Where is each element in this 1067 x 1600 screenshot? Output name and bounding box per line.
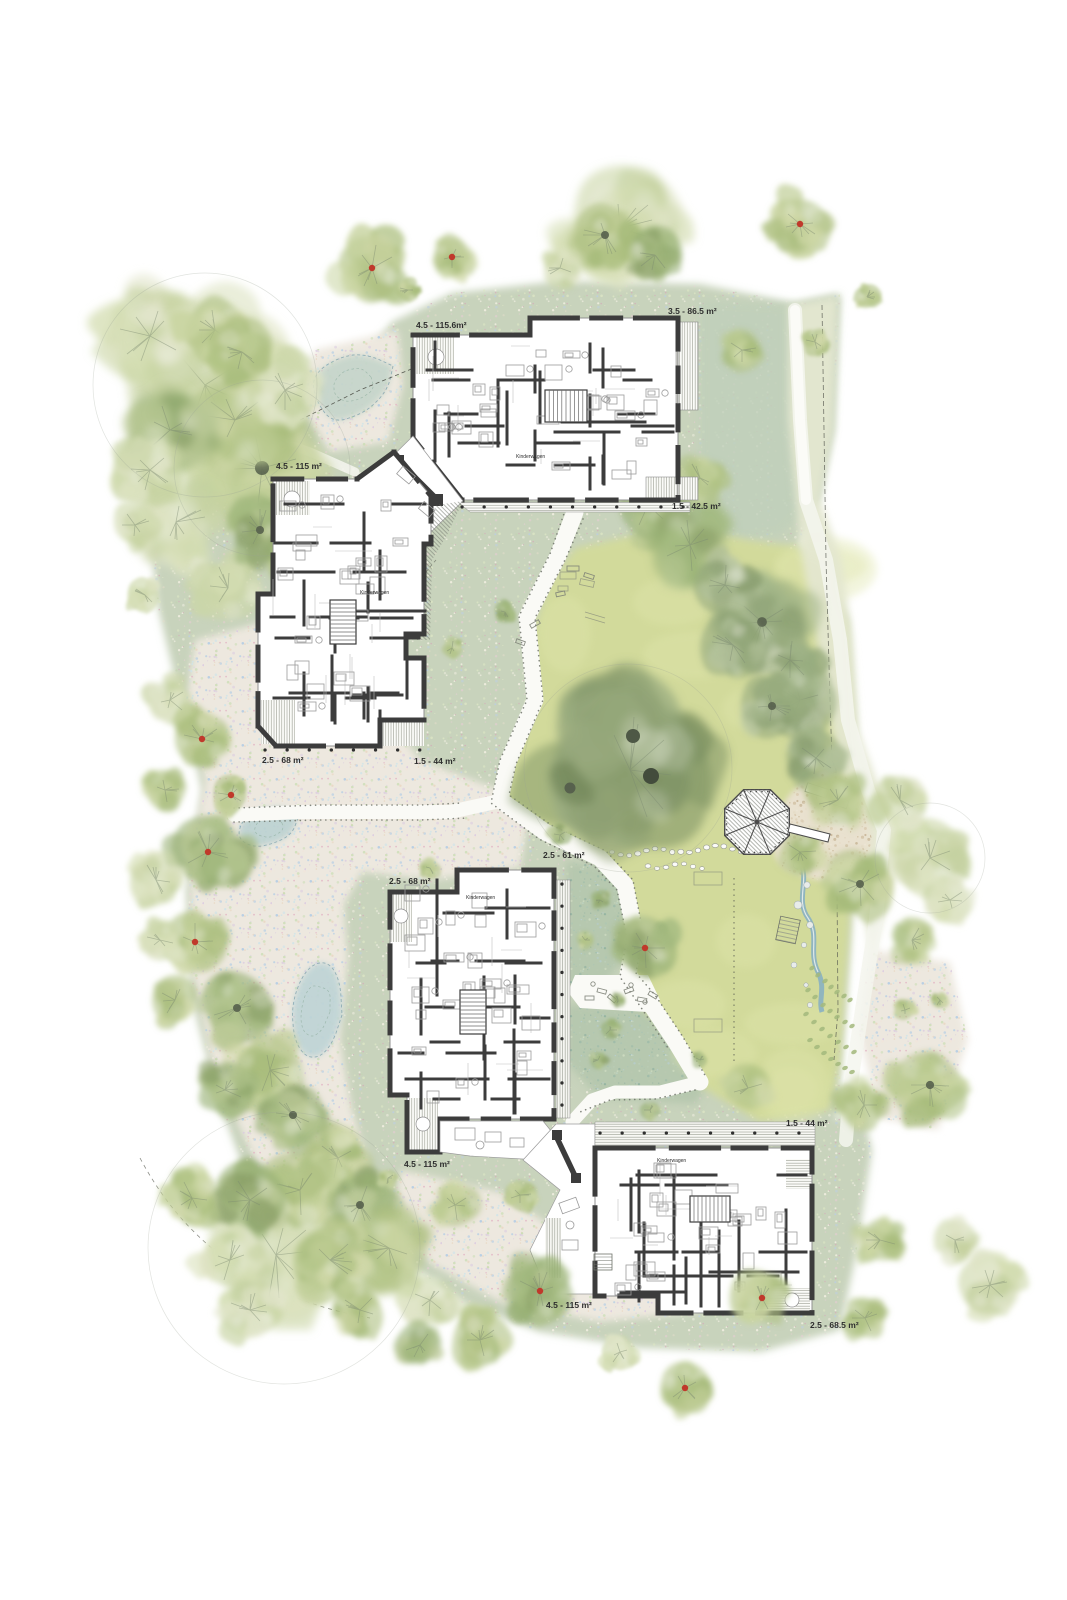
svg-text:Kinderwagen: Kinderwagen (657, 1158, 686, 1164)
svg-text:1.5 - 44 m²: 1.5 - 44 m² (786, 1118, 828, 1128)
svg-text:4.5 - 115 m²: 4.5 - 115 m² (546, 1300, 592, 1310)
svg-text:2.5 - 68.5 m²: 2.5 - 68.5 m² (810, 1320, 859, 1330)
svg-text:1.5 - 44 m²: 1.5 - 44 m² (414, 756, 456, 766)
svg-text:4.5 - 115 m²: 4.5 - 115 m² (404, 1159, 450, 1169)
svg-text:4.5 - 115.6m²: 4.5 - 115.6m² (416, 320, 467, 330)
svg-text:2.5 - 68 m²: 2.5 - 68 m² (262, 755, 304, 765)
svg-text:Kinderwagen: Kinderwagen (360, 590, 389, 596)
svg-text:Kinderwagen: Kinderwagen (466, 895, 495, 901)
svg-text:3.5 - 86.5 m²: 3.5 - 86.5 m² (668, 306, 717, 316)
svg-text:2.5 - 61 m²: 2.5 - 61 m² (543, 850, 585, 860)
svg-text:2.5 - 68 m²: 2.5 - 68 m² (389, 876, 431, 886)
svg-text:4.5 - 115 m²: 4.5 - 115 m² (276, 461, 322, 471)
svg-text:Kinderwagen: Kinderwagen (516, 454, 545, 460)
svg-text:1.5 - 42.5 m²: 1.5 - 42.5 m² (672, 501, 721, 511)
